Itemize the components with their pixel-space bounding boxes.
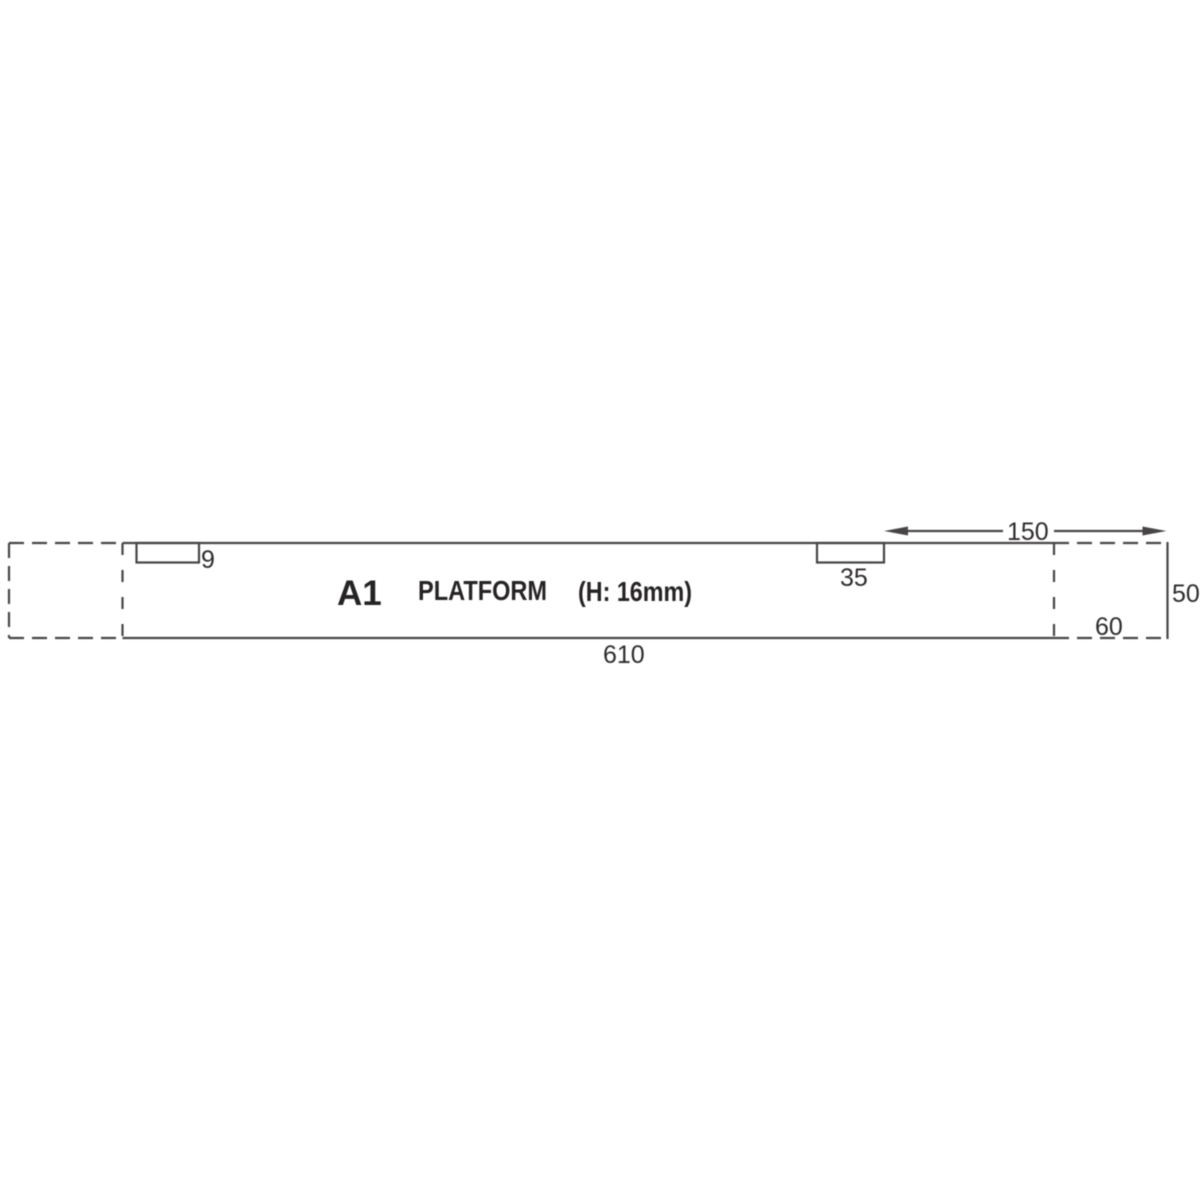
svg-text:610: 610 — [603, 641, 645, 669]
svg-text:PLATFORM: PLATFORM — [418, 575, 547, 606]
svg-text:A1: A1 — [337, 574, 382, 613]
svg-text:50: 50 — [1172, 580, 1200, 608]
svg-text:(H: 16mm): (H: 16mm) — [578, 576, 692, 607]
svg-text:60: 60 — [1095, 613, 1123, 641]
svg-text:9: 9 — [201, 546, 215, 574]
svg-text:35: 35 — [840, 564, 868, 592]
svg-text:150: 150 — [1007, 518, 1049, 546]
